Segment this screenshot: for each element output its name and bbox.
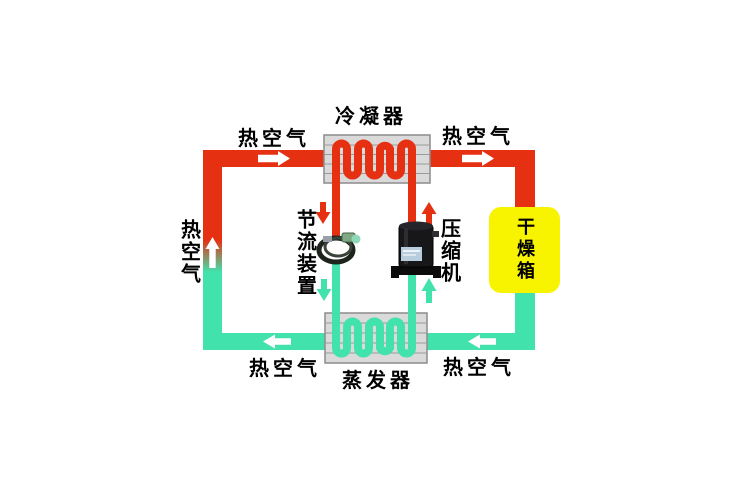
compressor-label: 压缩机 [438,218,459,284]
hot-air-label-left: 热空气 [178,219,199,285]
compressor-icon [391,222,441,279]
drying-box-label: 干燥箱 [515,217,534,283]
arrow-refrigerant-down-cold [317,279,332,301]
condenser-label: 冷凝器 [335,107,407,127]
hot-air-label-top-right: 热空气 [442,127,514,147]
hot-air-label-bottom-left: 热空气 [249,359,321,379]
evaporator-label: 蒸发器 [342,371,414,391]
drying-box: 干燥箱 [489,207,560,293]
piping-artwork [0,0,750,500]
hot-air-label-top-left: 热空气 [238,129,310,149]
throttle-device-label: 节流装置 [294,209,315,297]
arrow-refrigerant-up-cold [422,278,437,303]
arrow-refrigerant-down-hot [316,202,331,224]
throttle-device-icon [319,233,361,262]
diagram-canvas: 干燥箱 冷凝器 蒸发器 节流装置 压缩机 热空气 热空气 热空气 热空气 热空气 [0,0,750,500]
hot-air-label-bottom-right: 热空气 [443,358,515,378]
